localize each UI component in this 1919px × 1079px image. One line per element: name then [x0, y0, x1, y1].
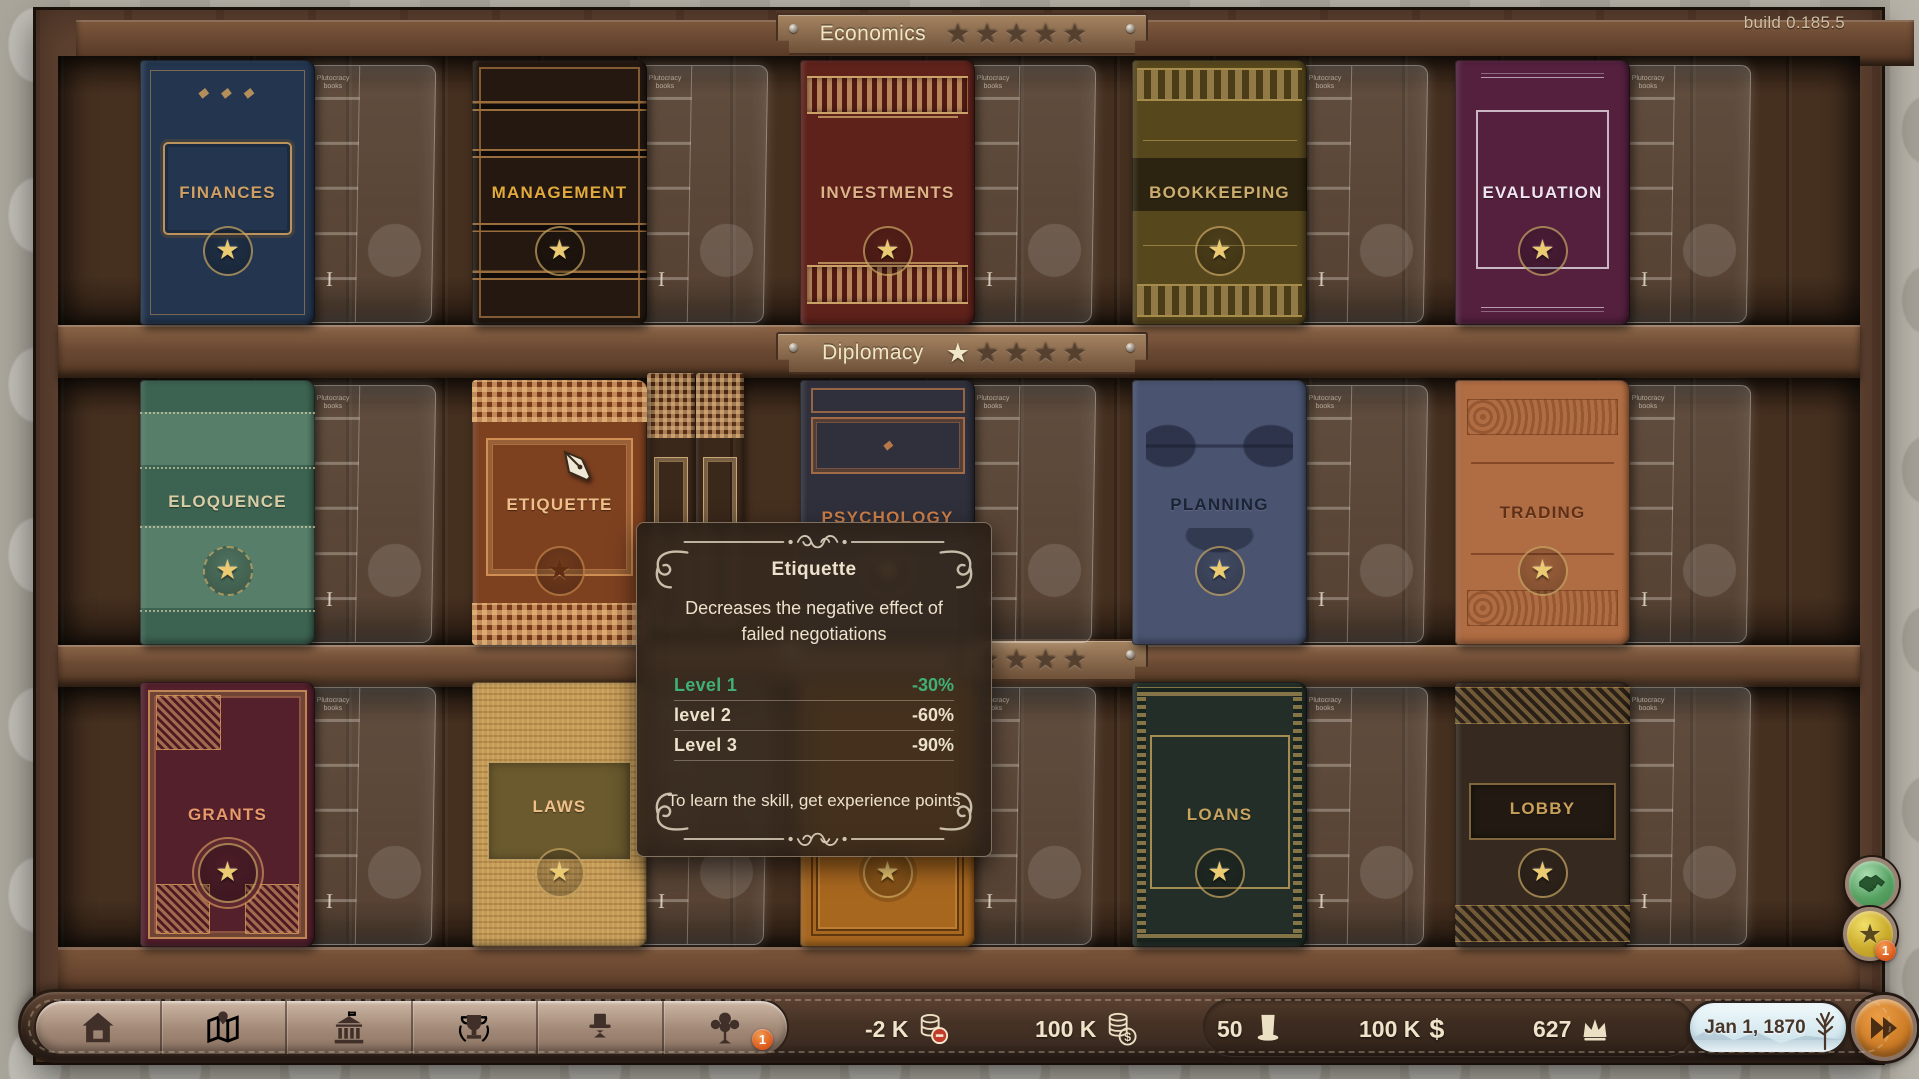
- book-title: LOANS: [1143, 805, 1297, 825]
- book-slot: Plutocracy booksI PLANNING ★: [1132, 380, 1442, 652]
- book-management[interactable]: MANAGEMENT ★: [472, 60, 647, 325]
- level-row-2: level 2 -60%: [674, 701, 954, 731]
- main-toolbar: 1: [34, 999, 789, 1056]
- star-emblem-icon: ★: [215, 557, 239, 584]
- book-title: MANAGEMENT: [483, 183, 637, 203]
- tooltip-title: Etiquette: [637, 559, 991, 581]
- star-emblem-icon: ★: [1207, 557, 1231, 584]
- book-slot: Plutocracy booksI BOOKKEEPING ★: [1132, 60, 1442, 332]
- star-emblem-icon: ★: [1207, 237, 1231, 264]
- tree-icon: [706, 1009, 744, 1047]
- book-lobby[interactable]: LOBBY ★: [1455, 682, 1630, 947]
- star-emblem-icon: ★: [1530, 557, 1554, 584]
- book-etiquette[interactable]: ETIQUETTE ★: [472, 380, 647, 645]
- government-button[interactable]: [287, 1001, 413, 1054]
- book-trading[interactable]: TRADING ★: [1455, 380, 1630, 645]
- book-title: TRADING: [1466, 503, 1620, 523]
- book-slot: Plutocracy booksI LOANS ★: [1132, 682, 1442, 954]
- skill-level-emblem: ★: [1518, 546, 1568, 596]
- achievements-button[interactable]: [413, 1001, 539, 1054]
- book-finances[interactable]: FINANCES ★: [140, 60, 315, 325]
- ghost-book: Plutocracy booksI: [962, 65, 1097, 323]
- tooltip-levels: Level 1 -30% level 2 -60% Level 3 -90%: [674, 671, 954, 761]
- ghost-book: Plutocracy booksI: [1617, 385, 1752, 643]
- star-emblem-icon: ★: [1207, 859, 1231, 886]
- star-emblem-icon: ★: [215, 859, 239, 886]
- ghost-book: Plutocracy booksI: [1294, 65, 1429, 323]
- skill-level-emblem: ★: [1195, 848, 1245, 898]
- bottom-bar: 1 -2 K 100 K 50 100 K $ 627 Jan 1, 18: [18, 989, 1901, 1063]
- estate-button[interactable]: [36, 1001, 162, 1054]
- book-evaluation[interactable]: EVALUATION ★: [1455, 60, 1630, 325]
- book-slot: Plutocracy booksI MANAGEMENT ★: [472, 60, 782, 332]
- character-button[interactable]: [538, 1001, 664, 1054]
- level-row-3: Level 3 -90%: [674, 731, 954, 761]
- map-icon: [204, 1009, 242, 1047]
- ornament-divider-icon: [664, 830, 964, 848]
- star-emblem-icon: ★: [547, 859, 571, 886]
- book-slot: Plutocracy booksI FINANCES ★: [140, 60, 450, 332]
- book-bookkeeping[interactable]: BOOKKEEPING ★: [1132, 60, 1307, 325]
- skill-level-emblem: ★: [535, 848, 585, 898]
- play-speed-button[interactable]: [1851, 995, 1917, 1061]
- coins-dollar-icon: [1105, 1011, 1137, 1047]
- trophy-icon: [455, 1009, 493, 1047]
- game-screen: build 0.185.5 Economics ★★★★★ Diplomacy …: [0, 0, 1919, 1079]
- stat-capital: 100 K $: [1359, 992, 1444, 1066]
- book-title: GRANTS: [151, 805, 305, 825]
- capitol-icon: [330, 1009, 368, 1047]
- stat-expenses: -2 K: [865, 992, 949, 1066]
- tooltip-note: To learn the skill, get experience point…: [655, 791, 973, 811]
- book-title: PLANNING: [1143, 495, 1297, 515]
- game-date: Jan 1, 1870: [1690, 1017, 1820, 1039]
- skill-level-emblem: ★: [535, 546, 585, 596]
- family-tree-button[interactable]: 1: [664, 1001, 788, 1054]
- book-grants[interactable]: GRANTS ★: [140, 682, 315, 947]
- skill-level-emblem: ★: [1518, 848, 1568, 898]
- book-slot: Plutocracy booksI LOBBY ★: [1455, 682, 1765, 954]
- ghost-book: Plutocracy booksI: [1294, 687, 1429, 945]
- category-stars: ★★★★★: [946, 340, 1124, 367]
- coins-minus-icon: [917, 1011, 949, 1047]
- star-emblem-icon: ★: [547, 237, 571, 264]
- book-title: ETIQUETTE: [483, 495, 637, 515]
- category-plaque-economics: Economics ★★★★★: [776, 13, 1148, 55]
- top-hat-person-icon: [581, 1009, 619, 1047]
- category-stars: ★★★★★: [946, 21, 1124, 48]
- stat-gentlemen: 50: [1217, 992, 1284, 1066]
- book-planning[interactable]: PLANNING ★: [1132, 380, 1307, 645]
- book-slot: Plutocracy booksI INVESTMENTS ★: [800, 60, 1110, 332]
- ornament-divider-icon: [664, 533, 964, 551]
- star-emblem-icon: ★: [547, 557, 571, 584]
- ghost-book: Plutocracy booksI: [634, 65, 769, 323]
- level-row-1: Level 1 -30%: [674, 671, 954, 701]
- star-emblem-icon: ★: [1530, 859, 1554, 886]
- tooltip-description: Decreases the negative effect of failed …: [667, 595, 961, 647]
- skill-level-emblem: ★: [203, 226, 253, 276]
- screw-icon: [789, 24, 798, 33]
- dollar-icon: $: [1429, 1014, 1444, 1045]
- screw-icon: [1126, 343, 1135, 352]
- book-laws[interactable]: LAWS ★: [472, 682, 647, 947]
- ghost-book: Plutocracy booksI: [302, 65, 437, 323]
- book-title: INVESTMENTS: [811, 183, 965, 203]
- ghost-book: Plutocracy booksI: [302, 385, 437, 643]
- book-title: EVALUATION: [1466, 183, 1620, 203]
- category-plaque-diplomacy: Diplomacy ★★★★★: [776, 332, 1148, 374]
- flourish-icon: [647, 790, 691, 834]
- skill-level-emblem: ★: [863, 226, 913, 276]
- star-emblem-icon: ★: [1530, 237, 1554, 264]
- handshake-icon: [1857, 869, 1887, 899]
- skill-level-emblem: ★: [198, 843, 258, 903]
- book-title: FINANCES: [151, 183, 305, 203]
- book-slot: Plutocracy booksI ELOQUENCE ★: [140, 380, 450, 652]
- map-button[interactable]: [162, 1001, 288, 1054]
- book-title: LOBBY: [1466, 799, 1620, 819]
- book-investments[interactable]: INVESTMENTS ★: [800, 60, 975, 325]
- ghost-book: Plutocracy booksI: [302, 687, 437, 945]
- fast-forward-icon: [1867, 1013, 1901, 1043]
- book-eloquence[interactable]: ELOQUENCE ★: [140, 380, 315, 645]
- book-title: ELOQUENCE: [151, 492, 305, 512]
- flourish-icon: [937, 790, 981, 834]
- book-slot: Plutocracy booksI TRADING ★: [1455, 380, 1765, 652]
- book-slot: Plutocracy booksI GRANTS ★: [140, 682, 450, 954]
- book-title: LAWS: [483, 797, 637, 817]
- skill-level-emblem: ★: [203, 546, 253, 596]
- skill-level-emblem: ★: [1195, 226, 1245, 276]
- category-label: Diplomacy: [800, 341, 946, 365]
- category-label: Economics: [800, 22, 946, 46]
- skill-level-emblem: ★: [535, 226, 585, 276]
- book-title: BOOKKEEPING: [1143, 183, 1297, 203]
- skill-level-emblem: ★: [1518, 226, 1568, 276]
- build-version-label: build 0.185.5: [1744, 13, 1845, 33]
- book-loans[interactable]: LOANS ★: [1132, 682, 1307, 947]
- stat-money: 100 K: [1035, 992, 1137, 1066]
- screw-icon: [789, 343, 798, 352]
- date-display: Jan 1, 1870: [1687, 1000, 1849, 1055]
- top-hat-icon: [1252, 1011, 1284, 1047]
- skill-tooltip: Etiquette Decreases the negative effect …: [636, 522, 992, 857]
- ghost-book: Plutocracy booksI: [1617, 687, 1752, 945]
- house-icon: [79, 1009, 117, 1047]
- family-notification-badge: 1: [752, 1029, 773, 1050]
- stat-prestige: 627: [1533, 992, 1610, 1066]
- ghost-book: Plutocracy booksI: [1294, 385, 1429, 643]
- ghost-book: Plutocracy booksI: [1617, 65, 1752, 323]
- star-emblem-icon: ★: [215, 237, 239, 264]
- book-slot: Plutocracy booksI EVALUATION ★: [1455, 60, 1765, 332]
- screw-icon: [1126, 24, 1135, 33]
- pen-cursor-icon: [560, 448, 600, 488]
- crown-icon: [1580, 1015, 1610, 1043]
- skill-level-emblem: ★: [1195, 546, 1245, 596]
- skills-notification-badge: 1: [1875, 940, 1896, 961]
- negotiations-button[interactable]: [1845, 857, 1899, 911]
- star-emblem-icon: ★: [875, 237, 899, 264]
- star-emblem-icon: ★: [875, 859, 899, 886]
